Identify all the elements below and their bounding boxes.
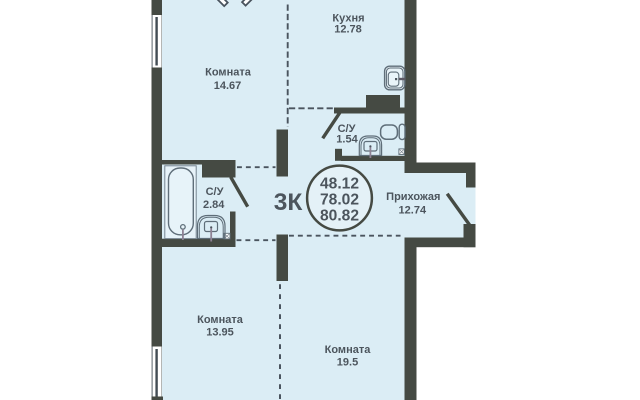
svg-text:13.95: 13.95 bbox=[206, 326, 234, 338]
svg-text:2.84: 2.84 bbox=[203, 199, 225, 211]
svg-text:48.12: 48.12 bbox=[320, 175, 359, 192]
svg-text:Комната: Комната bbox=[325, 344, 372, 356]
svg-text:Комната: Комната bbox=[205, 67, 252, 79]
svg-text:3К: 3К bbox=[274, 189, 303, 216]
svg-text:80.82: 80.82 bbox=[320, 207, 359, 224]
svg-text:12.74: 12.74 bbox=[399, 204, 427, 216]
svg-text:78.02: 78.02 bbox=[320, 191, 359, 208]
svg-text:14.67: 14.67 bbox=[214, 80, 242, 92]
svg-text:Кухня: Кухня bbox=[332, 12, 364, 24]
svg-text:С/У: С/У bbox=[206, 186, 224, 198]
svg-text:Прихожая: Прихожая bbox=[386, 191, 440, 203]
svg-text:12.78: 12.78 bbox=[334, 24, 362, 36]
svg-text:1.54: 1.54 bbox=[336, 134, 358, 146]
svg-text:19.5: 19.5 bbox=[337, 356, 358, 368]
svg-text:Комната: Комната bbox=[197, 314, 244, 326]
